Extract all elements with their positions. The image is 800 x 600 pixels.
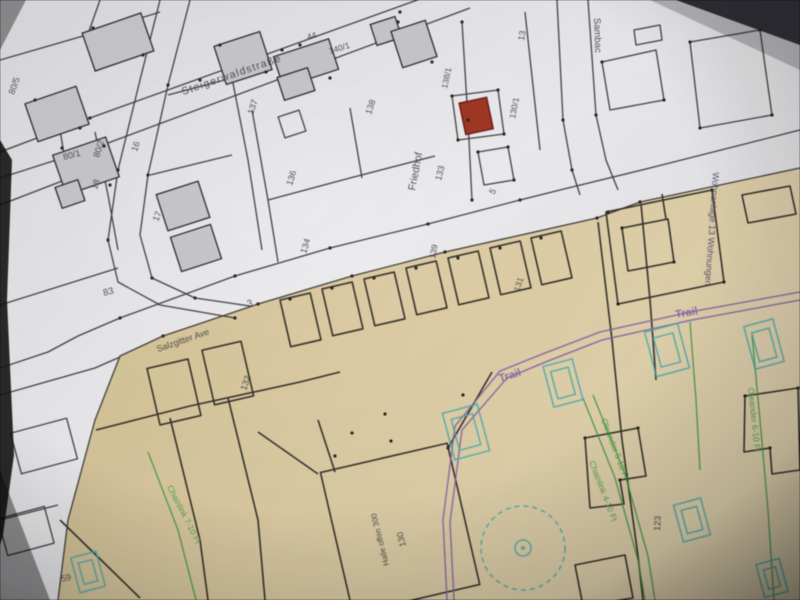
cadastral-map[interactable]: SteigerwaldstraßeSambacSalzgitter Ave80/… [0,0,800,600]
photo-vignette [0,0,800,600]
map-photo: SteigerwaldstraßeSambacSalzgitter Ave80/… [0,0,800,600]
